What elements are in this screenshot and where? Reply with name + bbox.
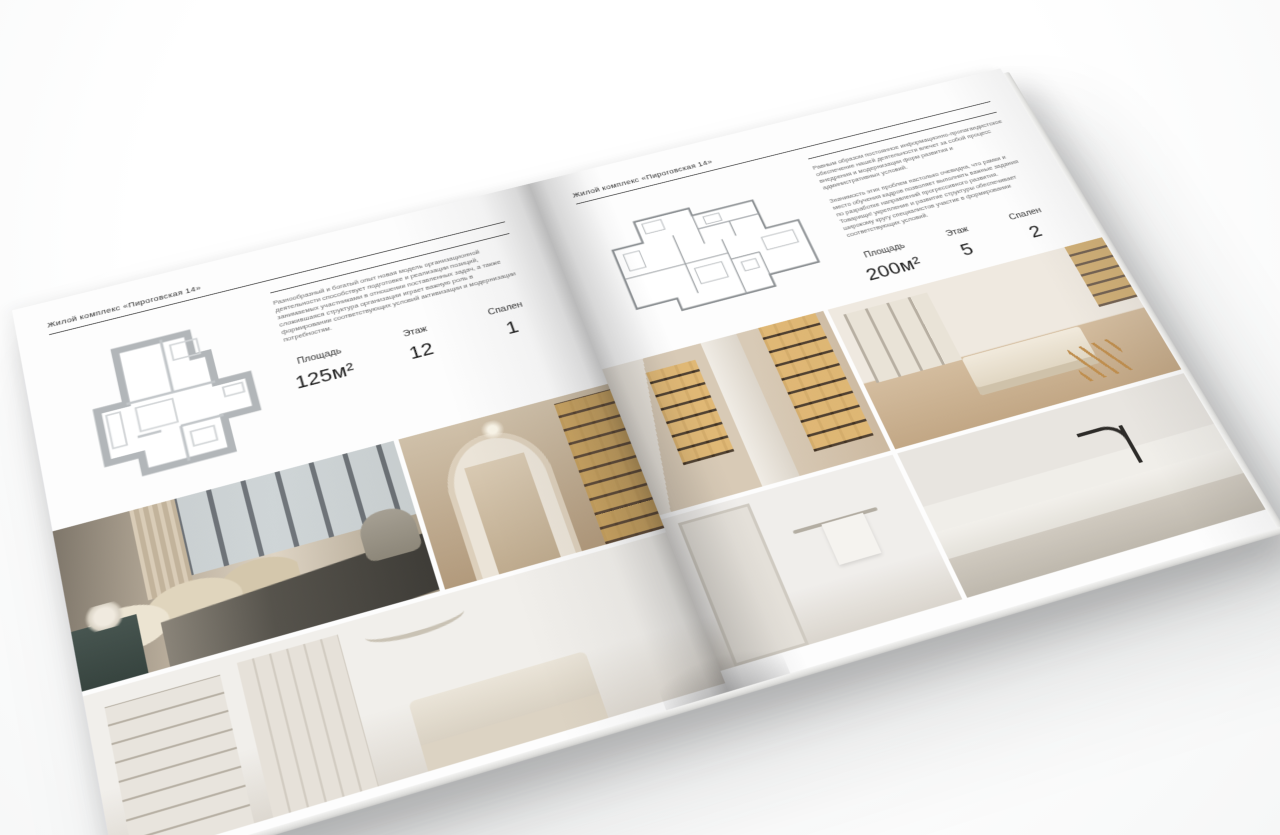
brochure-perspective: Жилой комплекс «Пироговская 14» — [60, 95, 1180, 735]
window-frames — [843, 292, 962, 383]
black-faucet — [1077, 422, 1139, 467]
brochure-spread: Жилой комплекс «Пироговская 14» — [12, 68, 1277, 835]
bed-with-bench — [408, 651, 608, 771]
stat-bedrooms: Спален 1 — [480, 298, 540, 344]
stat-bedrooms: Спален 2 — [1001, 204, 1063, 246]
stat-floor-value: 12 — [394, 335, 450, 367]
photo-backdrop: Жилой комплекс «Пироговская 14» — [0, 0, 1280, 835]
open-shelving — [104, 674, 254, 835]
stat-area: Площадь 200м² — [856, 239, 926, 285]
stat-bedrooms-value: 1 — [485, 312, 540, 344]
stat-floor: Этаж 12 — [389, 321, 449, 367]
stat-area: Площадь 125м² — [289, 344, 357, 393]
stat-floor: Этаж 5 — [933, 222, 995, 265]
stat-floor-value: 5 — [940, 235, 995, 265]
stat-bedrooms-value: 2 — [1008, 217, 1063, 247]
wardrobe-doors — [237, 634, 379, 817]
